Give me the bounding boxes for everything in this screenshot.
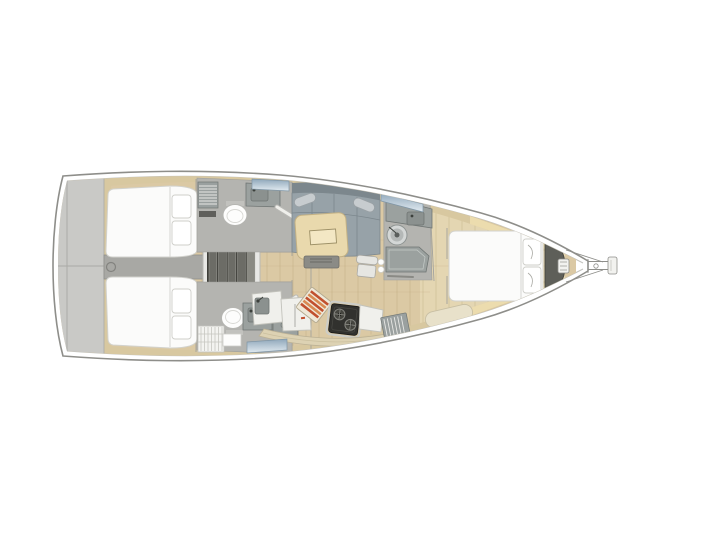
aft-cabin-port <box>106 186 205 257</box>
bowsprit-tip <box>608 257 617 274</box>
toilet-roll-icon <box>378 259 384 265</box>
pillow <box>172 221 191 245</box>
shower-seat <box>386 247 429 272</box>
interior <box>53 170 576 366</box>
aft-corridor <box>104 255 208 279</box>
corridor-floor <box>104 255 208 279</box>
yacht-floor-plan <box>0 0 720 539</box>
bath-mat <box>223 334 241 346</box>
yacht-floor-plan-page <box>0 0 720 539</box>
anchor-roller-icon <box>594 264 598 268</box>
faucet-icon <box>411 215 414 218</box>
vent-slot <box>199 211 216 217</box>
louver-slats <box>199 186 217 204</box>
pillow <box>172 316 191 339</box>
pillow <box>172 289 191 313</box>
salon <box>292 182 380 278</box>
step <box>238 249 246 284</box>
counter-basin <box>407 212 424 225</box>
table-leaf <box>310 229 337 245</box>
step-top <box>247 249 255 284</box>
step <box>219 249 227 284</box>
step <box>209 249 217 284</box>
grab-bar-icon <box>388 276 413 277</box>
chart-seat <box>357 264 376 278</box>
shower-grate <box>198 326 224 352</box>
chart-seat-back <box>356 255 378 265</box>
pillow <box>172 195 191 218</box>
step <box>228 249 236 284</box>
sink-drain-icon <box>395 233 400 238</box>
hatch-window <box>252 179 289 191</box>
warning-mark <box>301 317 305 319</box>
aft-cabin-starboard <box>106 277 205 348</box>
stove <box>326 301 363 338</box>
faucet-icon <box>250 310 253 313</box>
cup-icon <box>378 267 384 273</box>
outboard-counter <box>359 305 383 332</box>
